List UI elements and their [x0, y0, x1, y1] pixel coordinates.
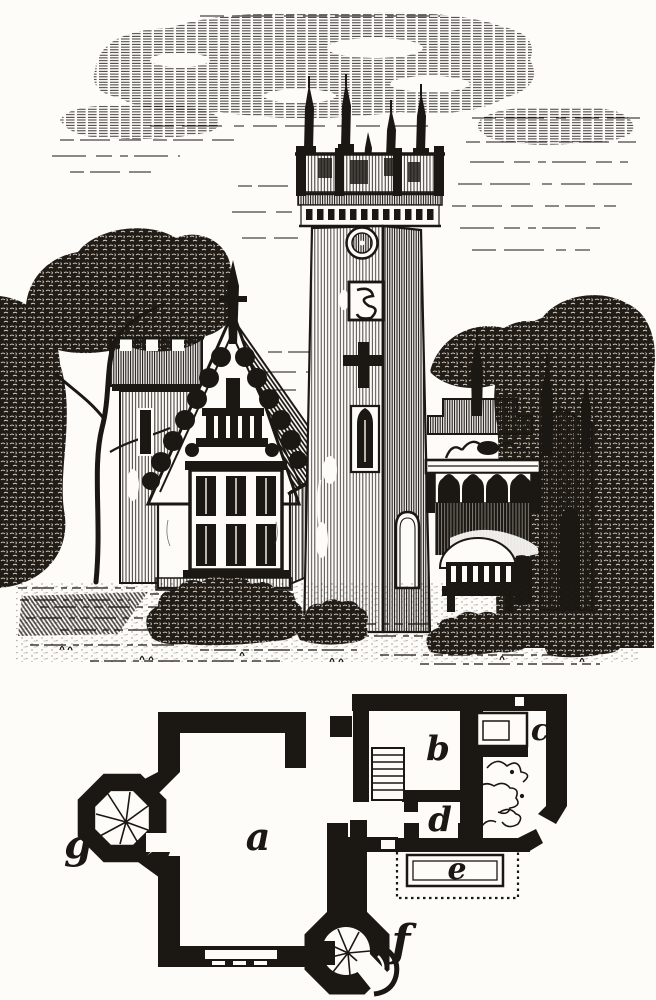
plan-label-c: c	[531, 713, 549, 748]
engraving-page: a b c d e f g	[0, 0, 656, 1000]
straight-stair	[372, 748, 404, 800]
plan-label-d: d	[428, 800, 452, 840]
wall	[538, 806, 567, 824]
wall	[158, 712, 306, 733]
wall	[285, 712, 306, 768]
tower-parapet	[295, 146, 445, 226]
doorway	[381, 840, 395, 849]
plan-label-b: b	[426, 729, 450, 769]
turret-arrow-slit	[139, 409, 152, 455]
wall	[158, 712, 180, 772]
window-sill	[183, 570, 289, 578]
wall	[305, 941, 335, 965]
porch-side-wall	[540, 408, 592, 610]
plan-label-g: g	[64, 821, 92, 868]
plan-walls	[78, 694, 567, 995]
clock-face	[347, 228, 378, 259]
chimney-projection	[330, 716, 352, 737]
wall	[398, 838, 530, 852]
lancet-window	[351, 406, 379, 472]
arched-niche	[396, 512, 419, 588]
doorway	[146, 833, 184, 852]
plan-label-a: a	[246, 814, 271, 859]
wall	[352, 694, 567, 711]
wall	[353, 694, 369, 802]
lodge-elevation-engraving	[0, 0, 656, 680]
clock-tower	[295, 74, 445, 632]
tower-shaft	[304, 226, 430, 632]
shrub-sketch	[476, 761, 528, 826]
plan-label-f: f	[389, 916, 418, 967]
wall	[458, 823, 474, 838]
spiral-stair-turret-g	[78, 774, 184, 863]
plan-label-e: e	[447, 852, 466, 887]
mullioned-window	[183, 461, 289, 578]
room-c-fixture	[477, 713, 527, 746]
wall	[350, 820, 367, 837]
wall	[404, 823, 419, 838]
carved-panel	[349, 282, 383, 320]
wall	[404, 790, 418, 812]
ground-floor-plan: a b c d e f g	[0, 680, 656, 1000]
wall	[546, 694, 567, 806]
window-opening	[205, 950, 277, 959]
